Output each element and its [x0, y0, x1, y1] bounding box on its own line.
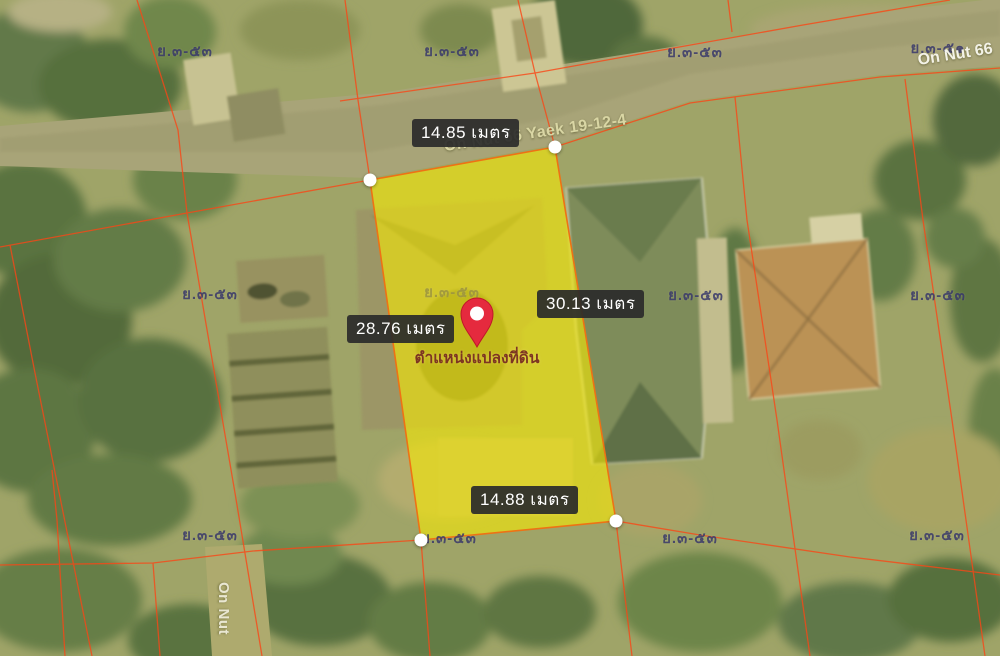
- zoning-label: ย.๓-๕๓: [667, 40, 723, 64]
- map-canvas[interactable]: ย.๓-๕๓ ย.๓-๕๓ ย.๓-๕๓ ย.๓-๕๑ ย.๓-๕๓ ย.๓-๕…: [0, 0, 1000, 656]
- zoning-label: ย.๓-๕๓: [182, 523, 238, 547]
- street-label-side: On Nut: [215, 582, 232, 635]
- zoning-label: ย.๓-๕๓: [909, 523, 965, 547]
- zoning-label: ย.๓-๕๓: [157, 39, 213, 63]
- measurement-bottom: 14.88 เมตร: [471, 486, 578, 514]
- plot-corner-marker: [549, 141, 562, 154]
- satellite-map-layer: [0, 0, 1000, 656]
- plot-corner-marker: [610, 515, 623, 528]
- zoning-label: ย.๓-๕๓: [424, 39, 480, 63]
- zoning-label: ย.๓-๕๓: [910, 283, 966, 307]
- measurement-top: 14.85 เมตร: [412, 119, 519, 147]
- zoning-label: ย.๓-๕๓: [668, 283, 724, 307]
- zoning-label: ย.๓-๕๓: [182, 282, 238, 306]
- measurement-right: 30.13 เมตร: [537, 290, 644, 318]
- zoning-label: ย.๓-๕๓: [421, 526, 477, 550]
- plot-corner-marker: [415, 534, 428, 547]
- location-pin-icon[interactable]: [456, 297, 498, 349]
- measurement-left: 28.76 เมตร: [347, 315, 454, 343]
- plot-corner-marker: [364, 174, 377, 187]
- zoning-label: ย.๓-๕๓: [662, 526, 718, 550]
